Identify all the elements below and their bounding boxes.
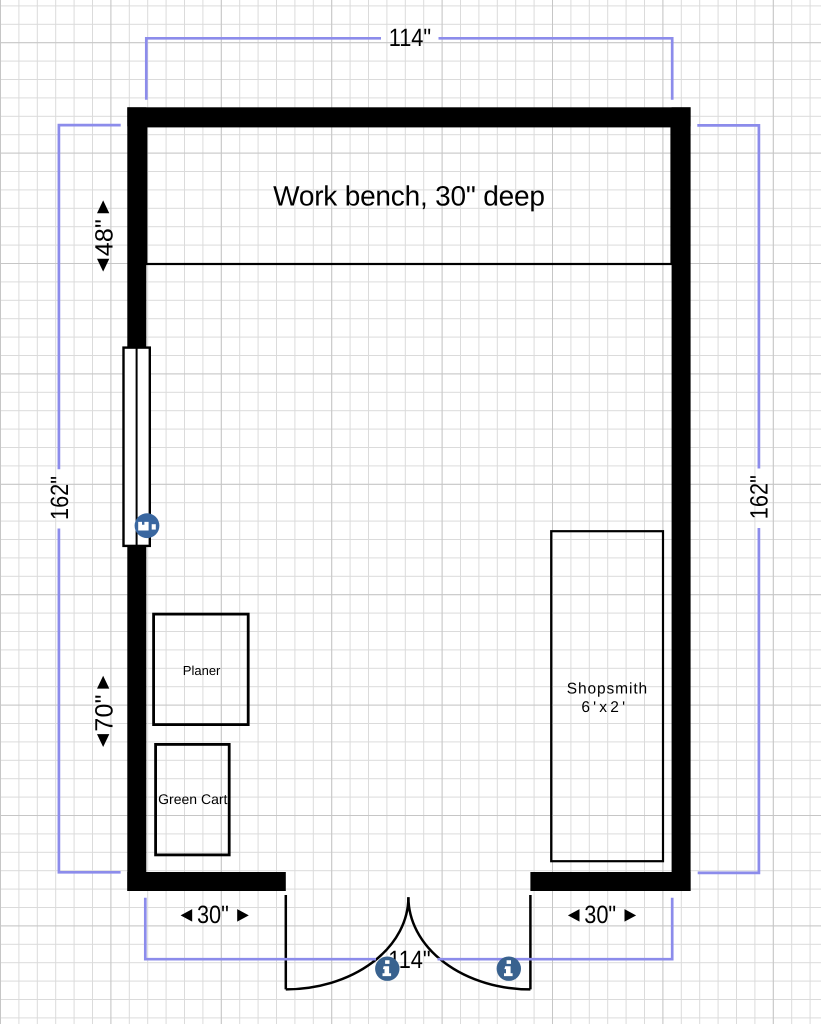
svg-text:70": 70" bbox=[90, 694, 118, 731]
svg-text:Shopsmith: Shopsmith bbox=[567, 680, 648, 697]
svg-text:Work bench, 30" deep: Work bench, 30" deep bbox=[273, 181, 545, 212]
svg-text:6'x2': 6'x2' bbox=[581, 699, 628, 716]
svg-text:162": 162" bbox=[745, 475, 773, 519]
svg-text:48": 48" bbox=[90, 219, 118, 256]
svg-text:Green Cart: Green Cart bbox=[158, 791, 227, 807]
svg-text:Planer: Planer bbox=[183, 663, 221, 678]
svg-text:114": 114" bbox=[389, 24, 431, 52]
svg-text:30": 30" bbox=[197, 901, 229, 929]
svg-text:30": 30" bbox=[584, 901, 616, 929]
svg-text:162": 162" bbox=[46, 476, 74, 520]
